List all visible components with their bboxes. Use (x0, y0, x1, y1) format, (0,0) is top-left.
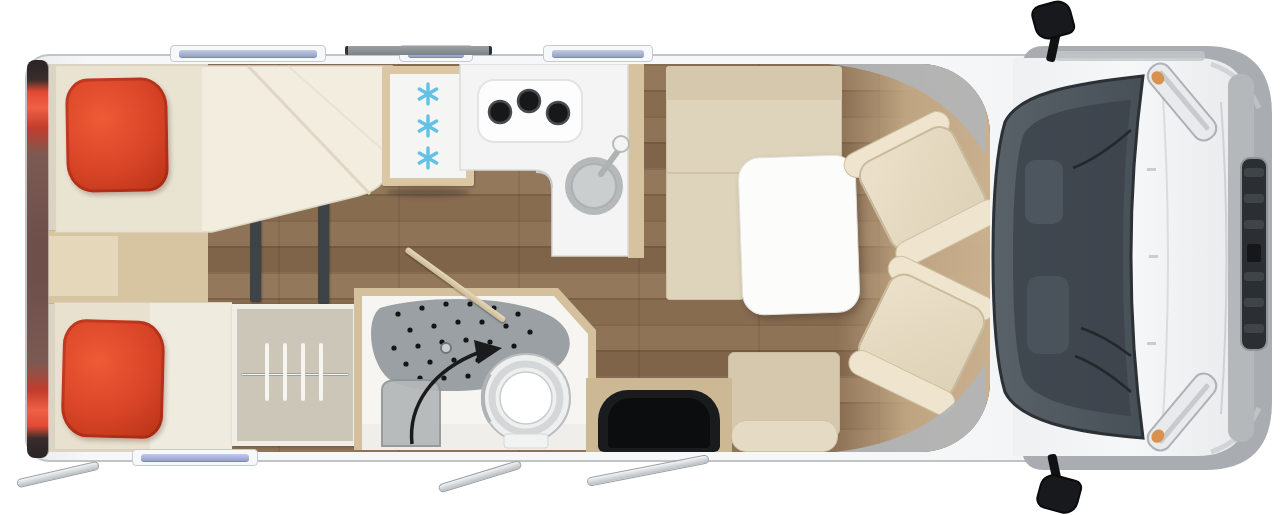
cab-front (985, 40, 1280, 475)
window-glass (141, 454, 249, 462)
cab-corner-shading (40, 64, 990, 452)
interior (40, 64, 990, 452)
window (132, 449, 258, 466)
wing-mirror-icon (1034, 471, 1084, 515)
motorhome-floorplan (0, 0, 1280, 515)
window-glass (552, 50, 644, 58)
wing-mirror-icon (1029, 0, 1077, 43)
window (170, 45, 326, 62)
windshield-inner (1013, 100, 1131, 416)
awning-rail (438, 460, 523, 494)
awning-rail (16, 461, 100, 489)
taillight-bar (27, 60, 49, 458)
brand-badge (1247, 244, 1261, 262)
window (543, 45, 653, 62)
window-glass (179, 50, 317, 58)
cab-roof-strip (1055, 51, 1205, 61)
roof-strip (345, 46, 492, 55)
